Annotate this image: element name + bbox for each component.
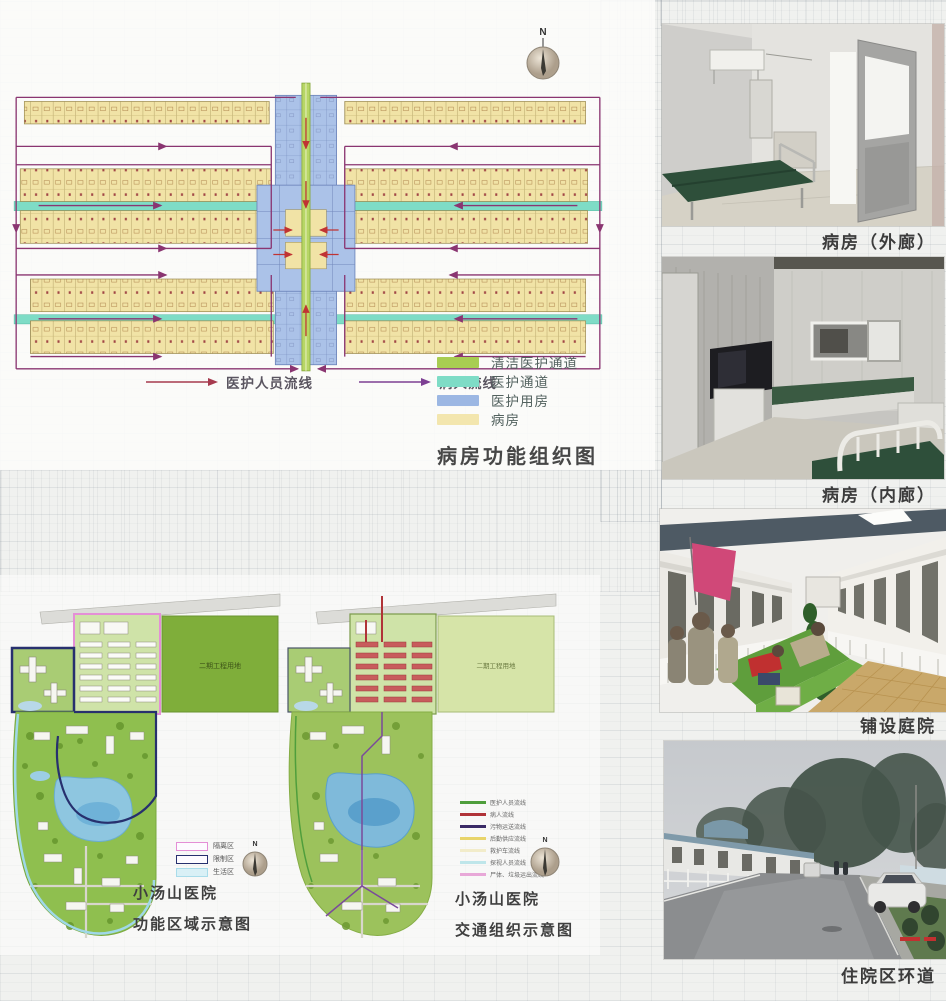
zone-label: 生活区: [213, 867, 234, 877]
traffic-swatch: [460, 801, 486, 804]
caption-line: 小汤山医院: [133, 878, 252, 909]
legend-label: 病房: [491, 409, 520, 429]
traffic-legend-row: 病人流线: [460, 810, 544, 819]
caption-line: 功能区域示意图: [133, 909, 252, 940]
caption-line: 交通组织示意图: [455, 915, 574, 946]
photo2-scene: [662, 257, 944, 479]
staff-flow-label: 医护人员流线: [226, 372, 313, 392]
site-plan-functional-caption: 小汤山医院 功能区域示意图: [133, 878, 252, 940]
zone-swatch-living: [176, 868, 208, 877]
legend-row-clean-corridor: 清洁医护通道: [437, 356, 578, 368]
traffic-legend-row: 污物运送流线: [460, 822, 544, 831]
legend-label: 医护用房: [491, 390, 549, 410]
legend-label: 清洁医护通道: [491, 352, 578, 372]
cad-patch-mid: [0, 470, 662, 592]
zone-legend-row: 限制区: [176, 854, 234, 864]
staff-flow-arrow-icon: [146, 377, 218, 387]
zone-label: 限制区: [213, 854, 234, 864]
campus-traffic: [289, 712, 432, 938]
pass-through-window: [812, 321, 900, 361]
ward-zone-traffic: [350, 596, 436, 714]
zone-legend-row: 隔离区: [176, 841, 234, 851]
compass-n-label: N: [520, 28, 566, 38]
zone-swatch-isolation: [176, 842, 208, 851]
traffic-swatch: [460, 861, 486, 864]
legend-row-medical-rooms: 医护用房: [437, 394, 578, 406]
date-stamp: [900, 937, 936, 941]
photo-ring-road: [664, 741, 946, 959]
legend-row-nurse-corridor: 医护通道: [437, 375, 578, 387]
far-building: [806, 577, 840, 607]
traffic-label: 探视人员流线: [490, 858, 526, 867]
floor-plan-title: 病房功能组织图: [437, 440, 598, 469]
traffic-swatch: [460, 873, 486, 876]
north-compass-left-map: N: [240, 840, 270, 878]
door-lower-panel: [865, 142, 909, 214]
phase2-label: 二期工程用地: [477, 661, 517, 670]
photo-ward-interior-corridor: [662, 257, 944, 479]
patient-flow-arrow-icon: [359, 377, 431, 387]
traffic-label: 后勤供应流线: [490, 834, 526, 843]
photo1-caption: 病房（外廊）: [700, 228, 936, 253]
legend-label: 医护通道: [491, 371, 549, 391]
compass-icon: [528, 846, 562, 878]
traffic-swatch: [460, 825, 486, 828]
photo4-scene: [664, 741, 946, 959]
zone-label: 隔离区: [213, 841, 234, 851]
traffic-swatch: [460, 813, 486, 816]
photo3-caption: 铺设庭院: [700, 712, 936, 737]
traffic-label: 医护人员流线: [490, 798, 526, 807]
traffic-swatch: [460, 849, 486, 852]
compass-icon: [520, 38, 566, 82]
legend-swatch: [437, 357, 479, 368]
right-wall-edge: [932, 24, 944, 226]
compass-n-label: N: [528, 836, 562, 846]
ward-floor-plan-svg: [8, 78, 608, 378]
photo-courtyard-paving: [660, 509, 946, 712]
zone-legend: 隔离区 限制区 生活区: [176, 841, 234, 877]
legend-row-ward: 病房: [437, 413, 578, 425]
air-conditioner: [710, 50, 764, 70]
legend-swatch: [437, 395, 479, 406]
far-vehicle: [804, 863, 820, 877]
area-legend: 清洁医护通道 医护通道 医护用房 病房: [437, 356, 578, 425]
paint-bucket: [776, 687, 800, 705]
door-opening: [830, 52, 856, 204]
photo4-caption: 住院区环道: [700, 962, 936, 987]
restricted-area: [288, 648, 350, 712]
cad-patch-top-right: [660, 0, 946, 26]
zone-legend-row: 生活区: [176, 867, 234, 877]
caption-line: 小汤山医院: [455, 884, 574, 915]
traffic-label: 污物运送流线: [490, 822, 526, 831]
wall-panel: [750, 80, 772, 138]
site-plan-traffic-caption: 小汤山医院 交通组织示意图: [455, 884, 574, 946]
traffic-legend-row: 医护人员流线: [460, 798, 544, 807]
zone-swatch-restricted: [176, 855, 208, 864]
north-compass-right-map: N: [528, 836, 562, 878]
legend-swatch: [437, 376, 479, 387]
photo-ward-exterior-corridor: [662, 24, 944, 226]
restricted-zone: [12, 648, 74, 712]
north-compass-plan: N: [520, 28, 566, 82]
page: N 医护人员流线 病人流线 清洁医护通道: [0, 0, 946, 1001]
phase2-label: 二期工程用地: [199, 661, 241, 670]
flow-legend-item-staff: 医护人员流线: [146, 372, 313, 392]
photo3-scene: [660, 509, 946, 712]
doorway: [662, 273, 698, 479]
legend-swatch: [437, 414, 479, 425]
compass-icon: [240, 850, 270, 878]
photo2-caption: 病房（内廊）: [700, 481, 936, 506]
isolation-ward-zone: [74, 614, 160, 714]
traffic-label: 救护车流线: [490, 846, 520, 855]
compass-n-label: N: [240, 840, 270, 850]
photo1-scene: [662, 24, 944, 226]
ward-floor-plan: [8, 78, 608, 378]
door-glass: [865, 56, 909, 140]
traffic-label: 病人流线: [490, 810, 514, 819]
traffic-swatch: [460, 837, 486, 840]
